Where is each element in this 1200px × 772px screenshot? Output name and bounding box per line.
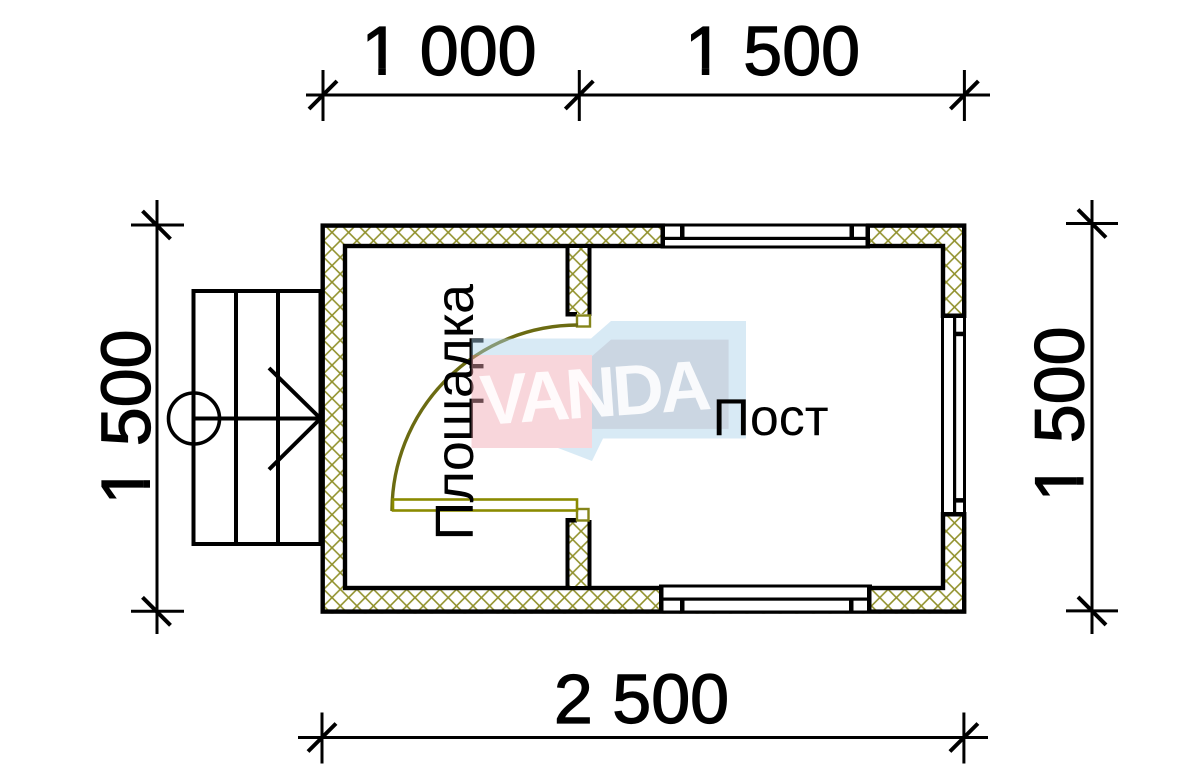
svg-text:Пост: Пост (713, 389, 829, 447)
svg-text:2 500: 2 500 (554, 660, 729, 738)
svg-text:1 500: 1 500 (685, 12, 860, 90)
svg-text:1 500: 1 500 (1021, 326, 1099, 501)
svg-text:VANDA: VANDA (478, 346, 713, 441)
svg-text:1 500: 1 500 (87, 329, 165, 504)
svg-text:1 000: 1 000 (361, 12, 536, 90)
